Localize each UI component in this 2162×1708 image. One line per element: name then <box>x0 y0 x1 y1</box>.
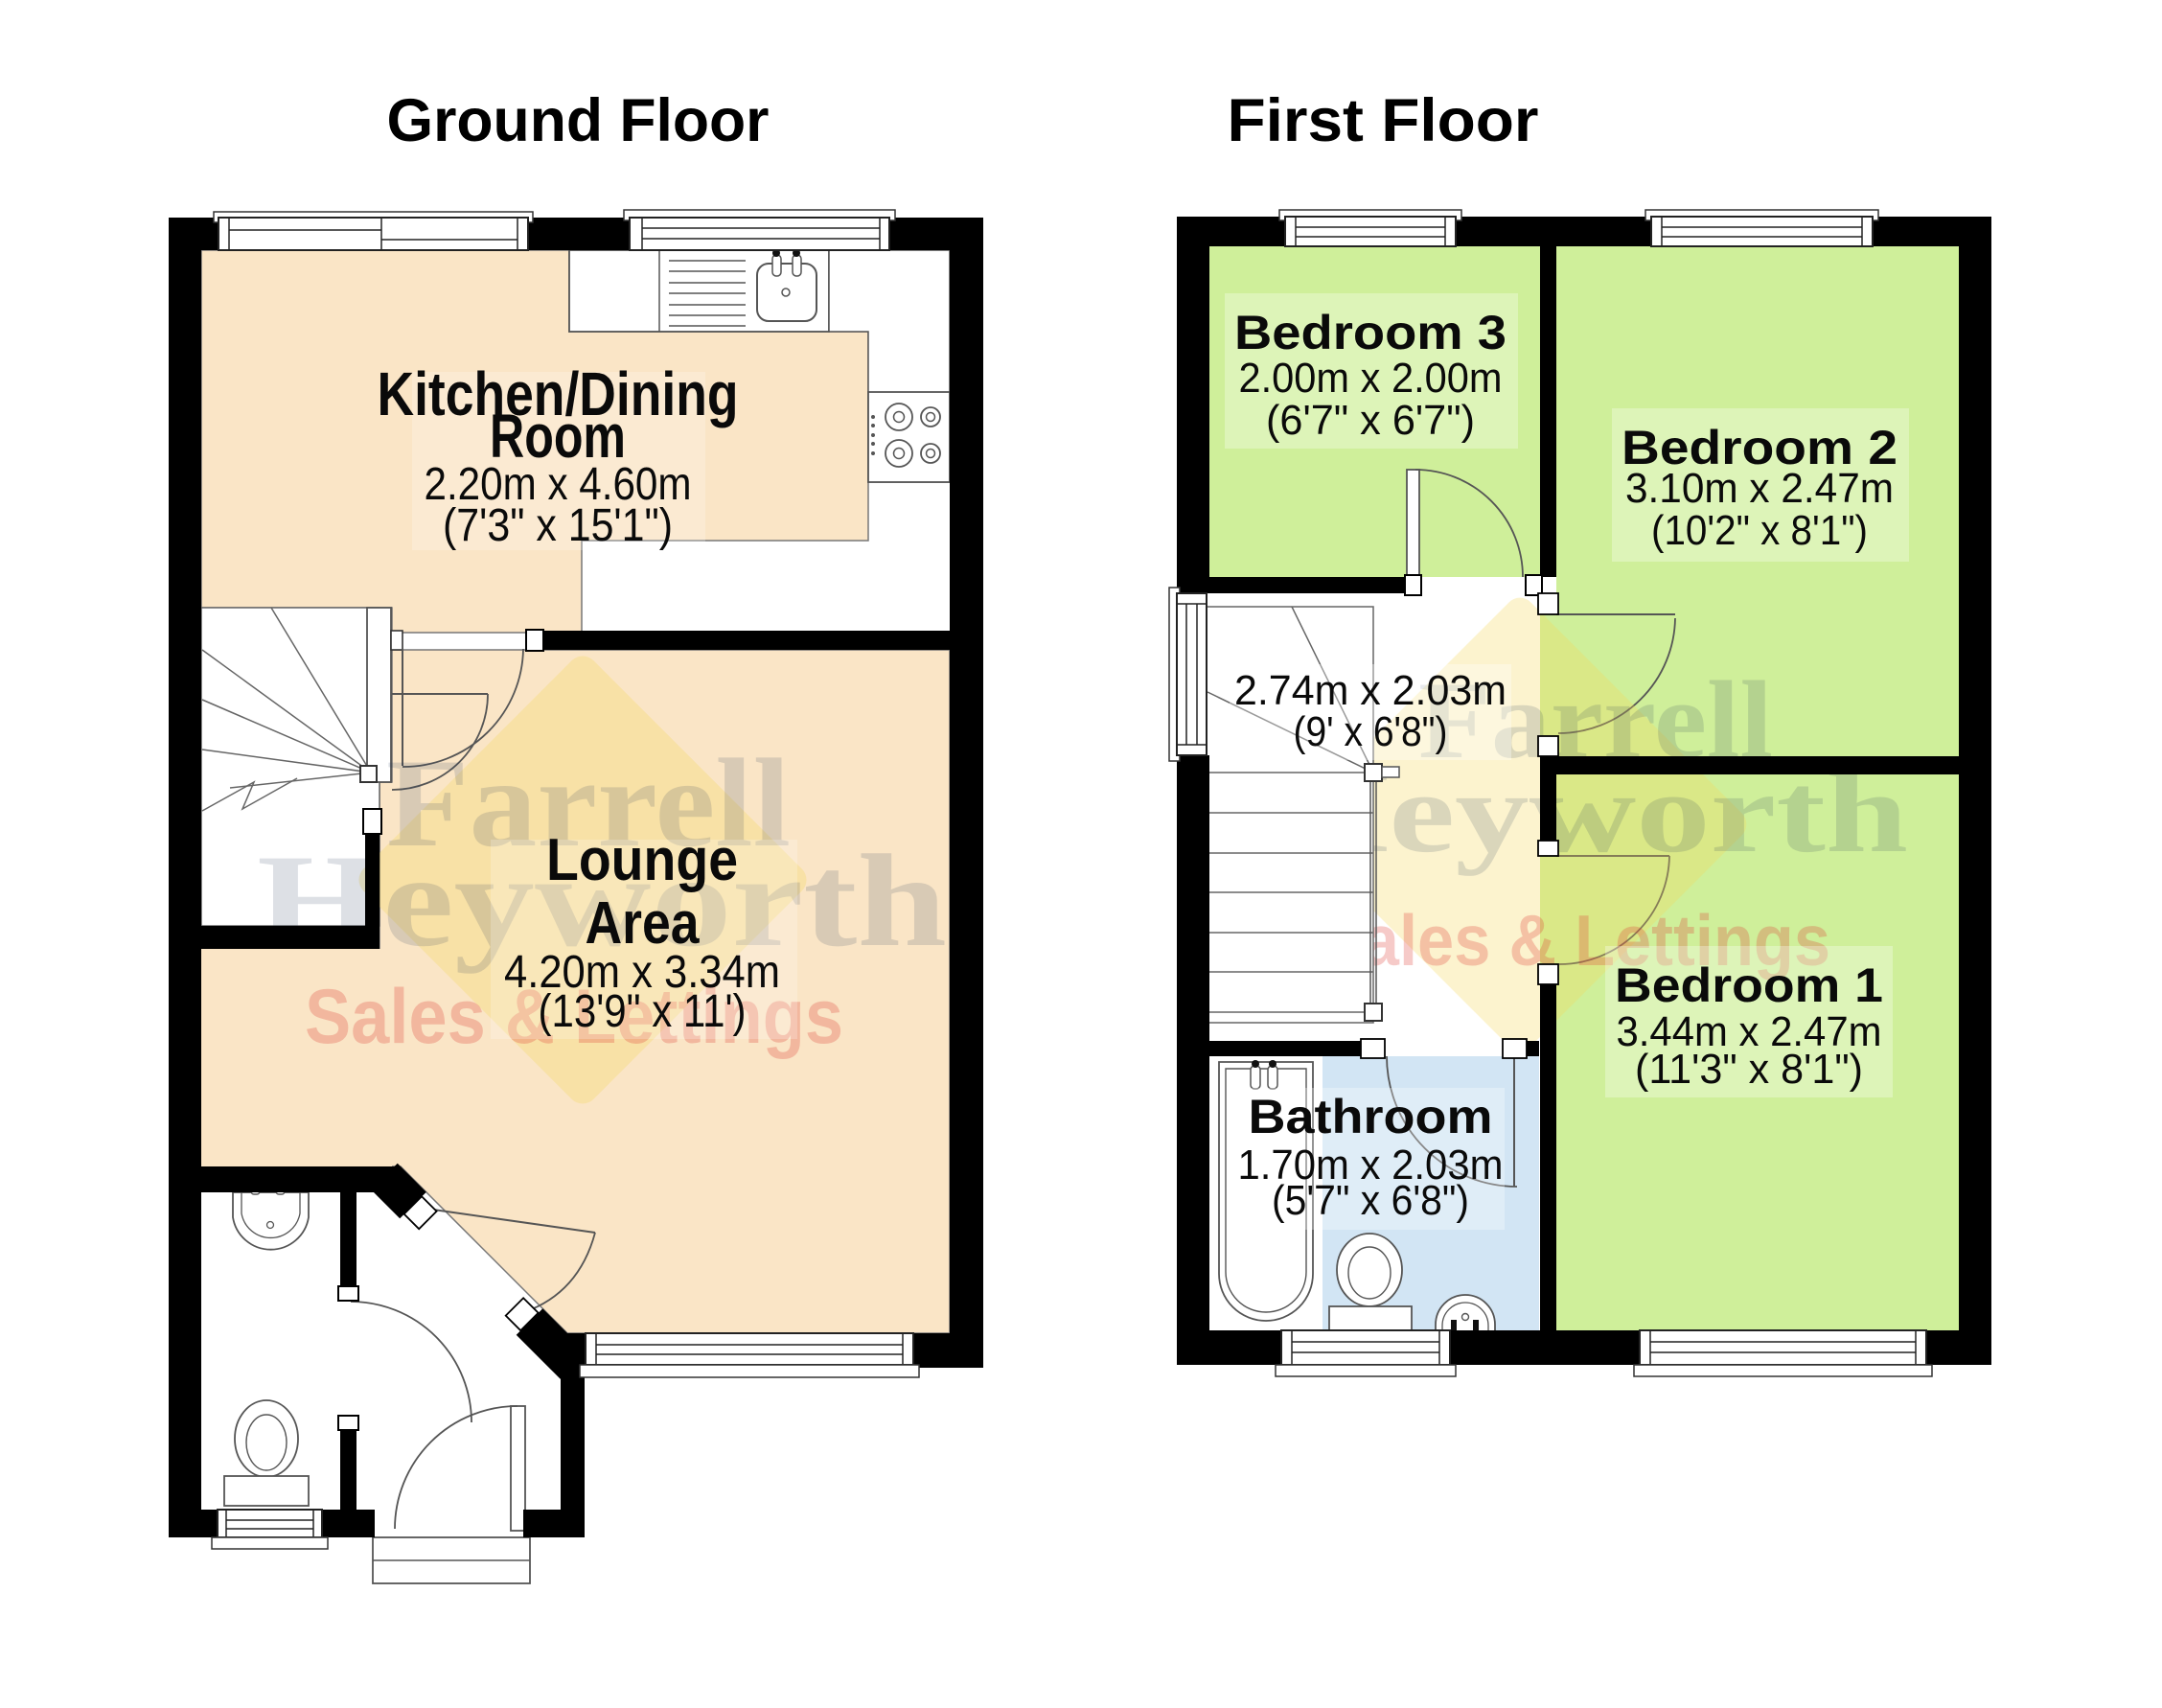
svg-text:Lounge: Lounge <box>546 827 738 893</box>
svg-text:First Floor: First Floor <box>1228 87 1539 154</box>
svg-text:3.10m x 2.47m: 3.10m x 2.47m <box>1625 465 1894 512</box>
svg-text:(10'2" x 8'1"): (10'2" x 8'1") <box>1651 507 1868 554</box>
svg-text:(7'3" x 15'1"): (7'3" x 15'1") <box>443 500 673 551</box>
svg-text:(5'7" x 6'8"): (5'7" x 6'8") <box>1272 1177 1469 1224</box>
svg-text:(9' x 6'8"): (9' x 6'8") <box>1294 708 1448 755</box>
svg-text:Bedroom 1: Bedroom 1 <box>1615 958 1883 1012</box>
svg-text:Bedroom 3: Bedroom 3 <box>1234 306 1506 359</box>
svg-text:Ground Floor: Ground Floor <box>387 87 770 154</box>
svg-text:Bathroom: Bathroom <box>1249 1090 1493 1143</box>
svg-text:2.00m x 2.00m: 2.00m x 2.00m <box>1239 355 1503 402</box>
svg-text:2.74m x 2.03m: 2.74m x 2.03m <box>1234 667 1506 714</box>
svg-text:(13'9" x 11'): (13'9" x 11') <box>539 986 747 1037</box>
svg-text:(6'7" x 6'7"): (6'7" x 6'7") <box>1266 397 1475 444</box>
svg-text:(11'3" x 8'1"): (11'3" x 8'1") <box>1635 1046 1863 1093</box>
